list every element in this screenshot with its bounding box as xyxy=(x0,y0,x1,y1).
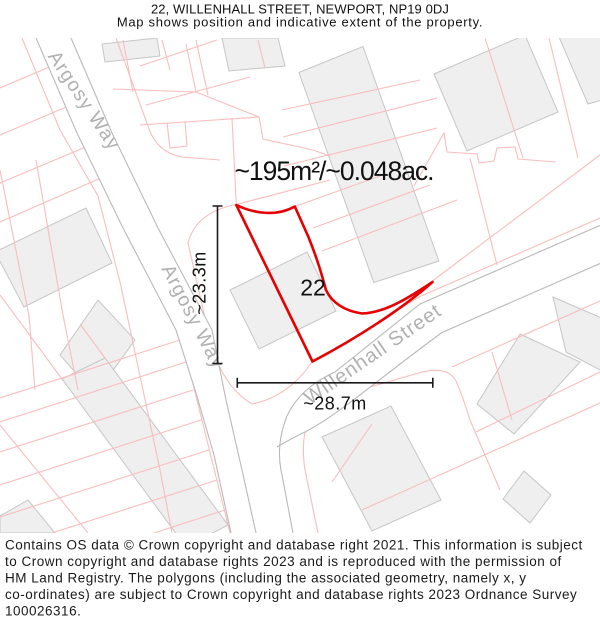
svg-text:to Crown copyright and databas: to Crown copyright and database rights 2… xyxy=(5,554,562,569)
svg-text:~195m²/~0.048ac.: ~195m²/~0.048ac. xyxy=(234,156,433,186)
svg-text:HM Land Registry. The polygons: HM Land Registry. The polygons (includin… xyxy=(5,571,527,586)
svg-text:Map shows position and indicat: Map shows position and indicative extent… xyxy=(117,15,483,30)
svg-text:~28.7m: ~28.7m xyxy=(303,394,367,414)
svg-text:~23.3m: ~23.3m xyxy=(190,251,210,315)
svg-text:100026316.: 100026316. xyxy=(5,604,81,619)
svg-text:Contains OS data © Crown copyr: Contains OS data © Crown copyright and d… xyxy=(5,538,583,553)
svg-text:co-ordinates) are subject to C: co-ordinates) are subject to Crown copyr… xyxy=(5,587,577,602)
svg-text:22: 22 xyxy=(300,275,326,301)
